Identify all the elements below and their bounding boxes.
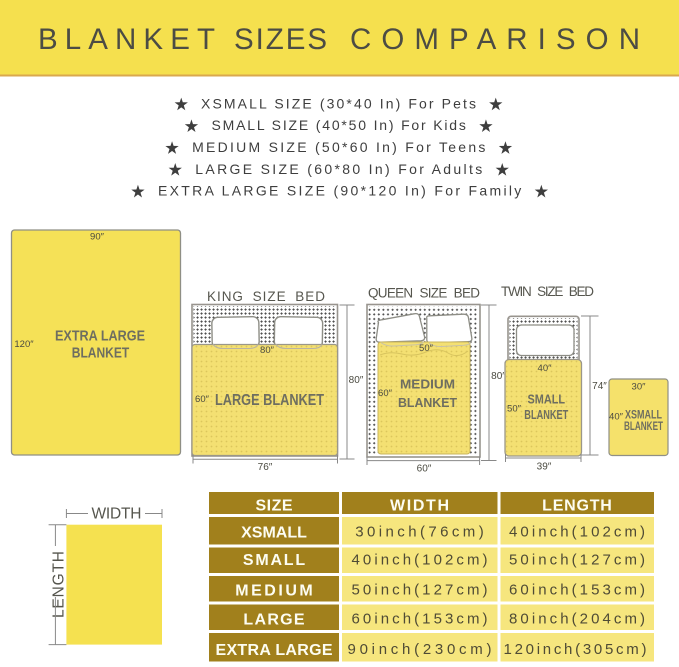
svg-text:39″: 39″ [537, 462, 552, 473]
svg-text:XSMALL SIZE (30*40 In) For Pet: XSMALL SIZE (30*40 In) For Pets [201, 95, 476, 111]
svg-text:50″: 50″ [419, 343, 434, 354]
svg-text:LARGE: LARGE [243, 612, 305, 629]
svg-text:80″: 80″ [260, 345, 275, 356]
svg-text:BLANKET: BLANKET [398, 395, 457, 410]
svg-text:40″: 40″ [609, 412, 624, 423]
svg-text:COMPARISON: COMPARISON [350, 23, 640, 56]
svg-text:KING SIZE BED: KING SIZE BED [207, 289, 325, 304]
svg-text:WIDTH: WIDTH [390, 498, 449, 515]
svg-text:60″: 60″ [195, 394, 210, 405]
svg-text:SMALL: SMALL [528, 392, 566, 406]
svg-text:BLANKET: BLANKET [624, 419, 663, 433]
svg-text:74″: 74″ [592, 381, 607, 392]
svg-text:BLANKET: BLANKET [72, 346, 130, 362]
svg-text:30″: 30″ [632, 382, 647, 393]
svg-text:EXTRA LARGE: EXTRA LARGE [216, 642, 333, 659]
svg-text:76″: 76″ [258, 462, 273, 473]
svg-text:BLANKET: BLANKET [524, 408, 568, 422]
svg-text:EXTRA LARGE: EXTRA LARGE [55, 329, 145, 345]
svg-text:SIZES: SIZES [234, 23, 327, 56]
svg-text:LENGTH: LENGTH [542, 498, 612, 515]
svg-text:MEDIUM: MEDIUM [235, 583, 313, 600]
svg-text:EXTRA LARGE SIZE (90*120 In) F: EXTRA LARGE SIZE (90*120 In) For Family [158, 183, 521, 199]
svg-text:120″: 120″ [14, 339, 34, 350]
svg-text:80″: 80″ [491, 371, 506, 382]
svg-text:80″: 80″ [349, 375, 364, 386]
svg-text:BLANKET: BLANKET [38, 23, 215, 56]
svg-text:LARGE SIZE (60*80 In) For Adul: LARGE SIZE (60*80 In) For Adults [195, 161, 482, 177]
svg-text:XSMALL: XSMALL [241, 525, 307, 542]
svg-text:60″: 60″ [378, 388, 393, 399]
svg-text:TWIN SIZE BED: TWIN SIZE BED [501, 284, 594, 299]
svg-text:SIZE: SIZE [255, 498, 292, 515]
svg-text:SMALL SIZE (40*50 In) For Kids: SMALL SIZE (40*50 In) For Kids [212, 117, 466, 133]
svg-text:QUEEN SIZE BED: QUEEN SIZE BED [368, 286, 480, 301]
svg-text:MEDIUM SIZE (50*60 In) For Tee: MEDIUM SIZE (50*60 In) For Teens [192, 139, 485, 155]
svg-text:SMALL: SMALL [243, 552, 305, 569]
svg-text:WIDTH: WIDTH [92, 506, 142, 523]
svg-text:60″: 60″ [417, 464, 432, 475]
svg-text:MEDIUM: MEDIUM [400, 377, 455, 392]
svg-text:40″: 40″ [538, 363, 553, 374]
svg-text:50″: 50″ [507, 404, 522, 415]
svg-text:90″: 90″ [90, 232, 105, 243]
svg-text:30inch(76cm): 30inch(76cm) [355, 524, 483, 541]
svg-text:LARGE BLANKET: LARGE BLANKET [215, 392, 324, 409]
svg-text:LENGTH: LENGTH [51, 551, 68, 618]
